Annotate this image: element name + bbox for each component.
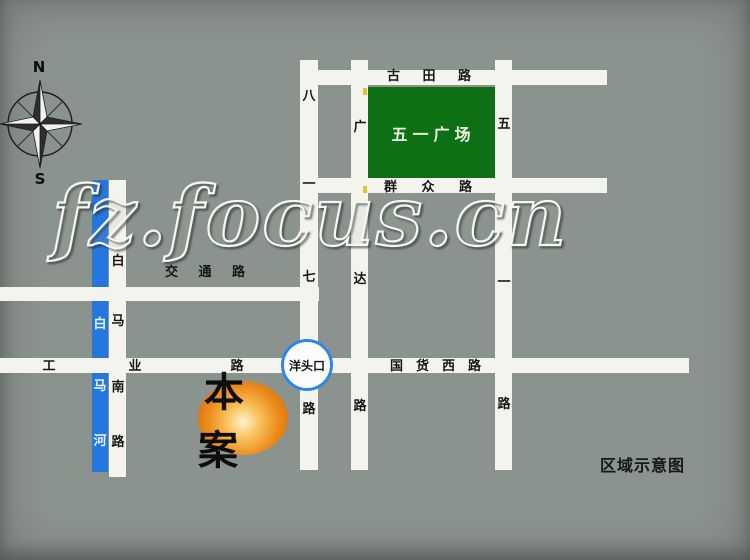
river-name-char: 马: [92, 380, 108, 394]
project-site-marker: 本案: [198, 381, 288, 455]
map-canvas: N S 白 马 河 五一广场 古田路 群众路: [0, 0, 750, 560]
road-label-bayiqi-char: 八: [301, 90, 317, 104]
yangtoukou-junction-badge: 洋头口: [281, 339, 333, 391]
road-label-bayiqi-char: 一: [301, 178, 317, 192]
river-name-char: 河: [92, 435, 108, 449]
road-label-qunzhong: 群众路: [384, 181, 472, 195]
road-label-baimanan-char: 白: [110, 255, 126, 269]
wuyi-square-label: 五一广场: [386, 121, 475, 145]
road-label-gongye-char: 业: [127, 360, 143, 374]
road-label-baimanan-char: 路: [110, 436, 126, 450]
road-label-bayiqi-char: 七: [301, 271, 317, 285]
compass-rose-icon: N S: [0, 58, 90, 186]
road-label-jiaotong: 交通路: [165, 266, 245, 280]
map-caption: 区域示意图: [600, 452, 685, 476]
map-tick-mark: [363, 186, 367, 193]
road-label-baimanan-char: 南: [110, 381, 126, 395]
road-guohuoxi: [0, 358, 689, 373]
river-name-char: 白: [92, 318, 108, 332]
road-label-gutian: 古田路: [387, 70, 471, 84]
road-label-bayiqi-char: 路: [301, 403, 317, 417]
road-label-baimanan-char: 马: [110, 315, 126, 329]
road-label-guohuoxi: 国货西路: [390, 360, 481, 374]
road-label-guangda-char: 达: [352, 273, 368, 287]
road-label-guangda-char: 广: [352, 121, 368, 135]
road-label-guangda-char: 路: [352, 400, 368, 414]
compass-north-label: N: [33, 58, 46, 76]
project-site-label: 本案: [198, 360, 288, 476]
road-label-gongye-char: 工: [41, 360, 57, 374]
wuyi-square-block: 五一广场: [367, 87, 495, 179]
map-tick-mark: [363, 88, 367, 95]
road-jiaotong: [0, 287, 319, 301]
yangtoukou-label: 洋头口: [289, 357, 325, 374]
road-label-wuyi-char: 路: [496, 398, 512, 412]
compass-south-label: S: [35, 170, 46, 186]
road-label-wuyi-char: 一: [496, 276, 512, 290]
road-label-wuyi-char: 五: [496, 118, 512, 132]
